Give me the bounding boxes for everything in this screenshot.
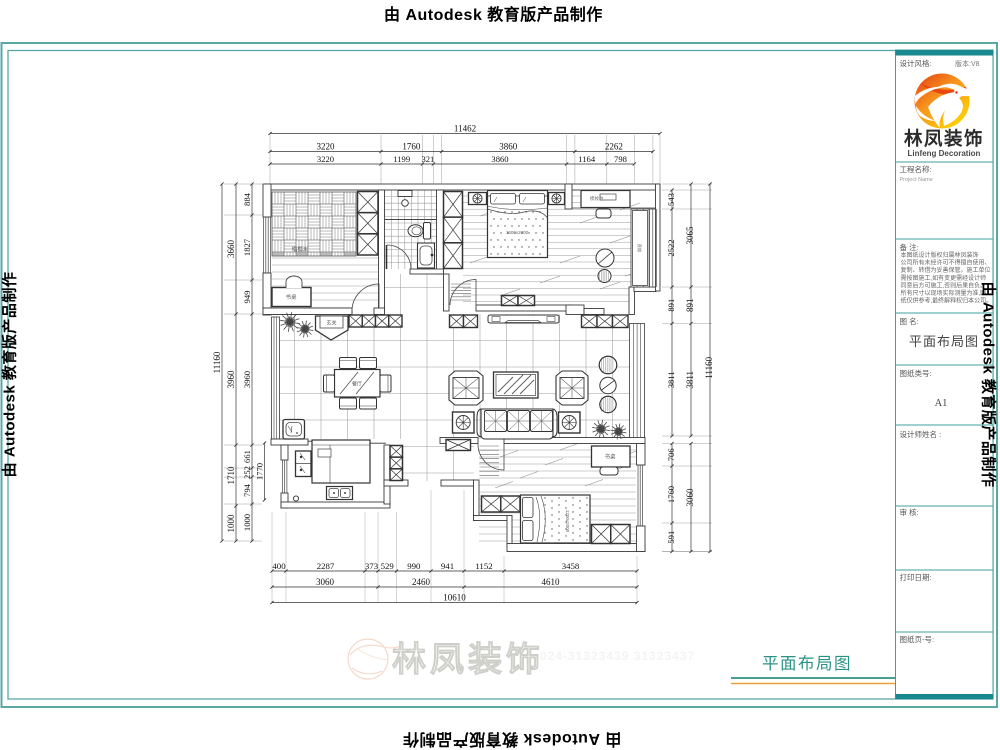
svg-text:Project Name: Project Name [900, 177, 933, 183]
svg-text:林凤装饰: 林凤装饰 [904, 128, 984, 149]
svg-text:平面布局图: 平面布局图 [762, 654, 852, 673]
svg-text:591: 591 [666, 531, 676, 544]
svg-text:3220: 3220 [317, 141, 336, 151]
svg-text:图纸页-号:: 图纸页-号: [900, 634, 935, 644]
svg-text:图纸类号:: 图纸类号: [900, 368, 932, 378]
svg-text:书桌: 书桌 [604, 453, 616, 461]
svg-text:3060: 3060 [685, 488, 695, 507]
svg-text:飘窗: 飘窗 [636, 244, 643, 252]
svg-text:11160: 11160 [704, 356, 714, 378]
svg-text:版本:V8: 版本:V8 [955, 59, 980, 68]
svg-text:400: 400 [272, 561, 286, 571]
svg-text:A1: A1 [935, 398, 948, 409]
svg-text:321: 321 [421, 154, 434, 164]
svg-text:1827: 1827 [242, 238, 252, 256]
svg-text:2460: 2460 [412, 577, 431, 587]
svg-text:玄关: 玄关 [326, 320, 336, 327]
svg-text:3065: 3065 [685, 226, 695, 245]
svg-text:书桌: 书桌 [285, 293, 297, 301]
svg-text:543: 543 [666, 193, 676, 206]
svg-text:3860: 3860 [499, 141, 518, 151]
svg-text:3860: 3860 [491, 154, 508, 164]
svg-text:1200x2000: 1200x2000 [565, 510, 570, 533]
svg-text:252: 252 [242, 466, 252, 479]
svg-text:529: 529 [381, 561, 395, 571]
svg-text:餐厅: 餐厅 [352, 381, 362, 388]
svg-text:林凤装饰: 林凤装饰 [392, 641, 544, 679]
svg-text:复制、转借为妥善保管。施工单位: 复制、转借为妥善保管。施工单位 [901, 266, 991, 274]
svg-text:1199: 1199 [393, 154, 410, 164]
svg-text:1760: 1760 [666, 486, 676, 503]
svg-text:884: 884 [242, 192, 252, 206]
svg-text:本图纸设计版权归属林凤装饰: 本图纸设计版权归属林凤装饰 [901, 251, 979, 259]
svg-text:Linfeng Decoration: Linfeng Decoration [908, 149, 981, 158]
svg-text:4610: 4610 [542, 577, 561, 587]
svg-text:设计风格:: 设计风格: [900, 58, 932, 68]
svg-text:1760: 1760 [402, 141, 421, 151]
svg-text:需按图施工,如有变更需经设计师: 需按图施工,如有变更需经设计师 [901, 274, 987, 282]
svg-text:891: 891 [685, 298, 695, 312]
svg-text:3960: 3960 [226, 370, 236, 389]
svg-text:2287: 2287 [317, 561, 335, 571]
svg-text:榻榻米: 榻榻米 [292, 245, 309, 253]
svg-text:设计师姓名 :: 设计师姓名 : [900, 429, 942, 439]
svg-text:794: 794 [242, 483, 252, 497]
svg-text:审 核:: 审 核: [900, 507, 919, 517]
svg-text:3960: 3960 [242, 371, 252, 388]
svg-text:949: 949 [242, 291, 252, 304]
svg-text:3458: 3458 [562, 561, 580, 571]
svg-text:1770: 1770 [254, 463, 264, 480]
svg-text:1710: 1710 [226, 466, 236, 485]
svg-text:990: 990 [407, 561, 421, 571]
svg-text:3060: 3060 [316, 577, 335, 587]
svg-text:10610: 10610 [443, 592, 466, 602]
svg-text:024-31323439 31323437: 024-31323439 31323437 [540, 649, 695, 663]
svg-text:梳妆台: 梳妆台 [590, 195, 604, 202]
svg-text:798: 798 [614, 154, 627, 164]
svg-text:661: 661 [242, 450, 252, 463]
svg-text:1000: 1000 [242, 514, 252, 531]
svg-text:图 名:: 图 名: [900, 316, 919, 326]
svg-text:打印日期:: 打印日期: [900, 572, 932, 582]
svg-text:备 注:: 备 注: [900, 242, 919, 252]
svg-text:3660: 3660 [226, 240, 236, 259]
svg-text:所有尺寸以现场实际测量为准,图: 所有尺寸以现场实际测量为准,图 [901, 289, 987, 297]
svg-text:373: 373 [365, 561, 379, 571]
svg-text:11462: 11462 [454, 123, 476, 133]
svg-text:工程名称:: 工程名称: [900, 164, 932, 174]
svg-text:1500x2000: 1500x2000 [506, 230, 529, 235]
svg-text:1164: 1164 [578, 154, 596, 164]
svg-text:891: 891 [666, 299, 676, 312]
svg-text:3811: 3811 [685, 371, 695, 389]
svg-text:941: 941 [441, 561, 454, 571]
svg-text:3220: 3220 [317, 154, 334, 164]
svg-text:公司所有未经许可不得擅自使用、: 公司所有未经许可不得擅自使用、 [901, 259, 991, 267]
svg-text:1152: 1152 [475, 561, 492, 571]
svg-text:2522: 2522 [666, 239, 676, 256]
svg-text:706: 706 [666, 448, 676, 462]
svg-text:平面布局图: 平面布局图 [909, 334, 979, 349]
svg-text:同意后方可施工,否则后果自负。: 同意后方可施工,否则后果自负。 [901, 281, 987, 289]
svg-text:3811: 3811 [666, 371, 676, 388]
svg-text:11160: 11160 [212, 351, 222, 373]
svg-text:2262: 2262 [605, 141, 623, 151]
svg-text:1000: 1000 [226, 514, 236, 533]
